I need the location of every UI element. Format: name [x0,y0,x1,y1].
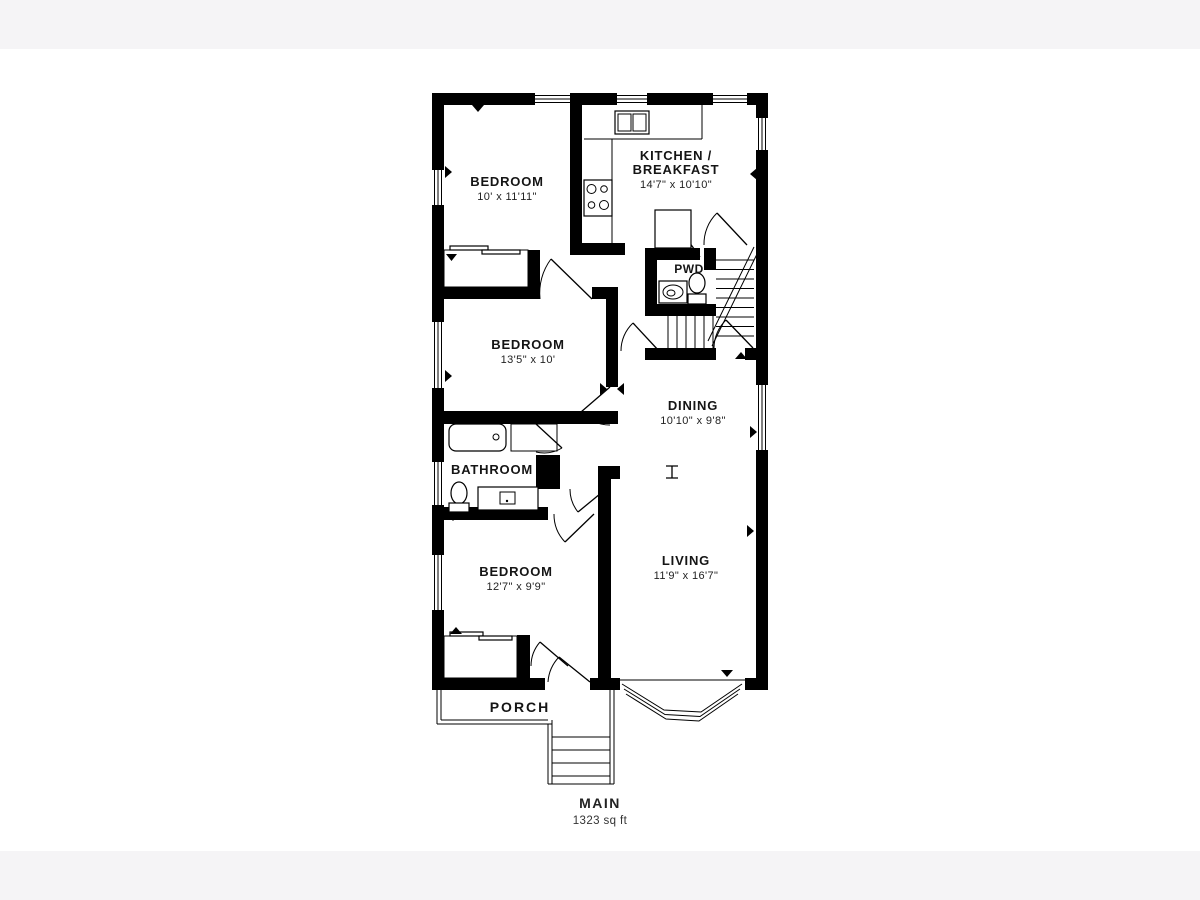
bedroom-middle-dims: 13'5" x 10' [501,354,556,366]
refrigerator [655,210,691,248]
window-top-3 [713,96,747,103]
door-dining-left [621,323,659,351]
bedroom-top-label: BEDROOM [470,174,544,189]
door-bath-hall [536,424,562,453]
powder-label: PWD [674,262,704,276]
plan-footer: MAIN 1323 sq ft [573,795,628,827]
powder-fixtures [659,273,706,304]
kitchen-label-1: KITCHEN / [640,148,712,163]
window-left-2 [435,322,442,388]
kitchen-dims: 14'7" x 10'10" [640,179,712,191]
bedroom-top-dims: 10' x 11'11" [477,191,537,203]
dining-label: DINING [668,398,718,413]
vanity-sink [478,487,538,510]
door-bedroom-bottom [554,514,594,542]
door-front [548,657,590,682]
door-kitchen-stairs [704,213,747,245]
kitchen-label-2: BREAKFAST [633,162,720,177]
porch-label: PORCH [490,699,551,715]
dining-dims: 10'10" x 9'8" [660,415,726,427]
living-label: LIVING [662,553,710,568]
column-marker [666,466,678,478]
powder-sink [659,281,687,303]
door-vestibule [531,642,568,666]
stove [584,180,612,216]
page: { "page": { "background": "#f5f4f6", "ca… [0,0,1200,900]
bathroom-label: BATHROOM [451,462,533,477]
powder-toilet [688,273,706,304]
closet-bedroom-bottom [444,632,517,678]
window-right-2 [759,385,766,450]
bathtub [449,424,506,451]
stairs-lower-flight [668,316,713,348]
bedroom-middle-label: BEDROOM [491,337,565,352]
door-bedroom-top [540,259,592,299]
toilet [449,482,469,512]
doors [531,213,753,682]
level-label: MAIN [579,795,621,811]
porch-steps [548,737,614,784]
window-left-4 [435,555,442,610]
window-left-3 [435,462,442,505]
floor-plan: BEDROOM 10' x 11'11" KITCHEN / BREAKFAST… [0,0,1200,900]
window-top-2 [617,96,647,103]
living-dims: 11'9" x 16'7" [654,570,719,582]
window-right-1 [759,118,766,150]
kitchen-sink [615,111,649,134]
window-top-1 [535,96,570,103]
window-left-1 [435,170,442,205]
bedroom-bottom-label: BEDROOM [479,564,553,579]
bay-window [620,680,745,721]
bedroom-bottom-dims: 12'7" x 9'9" [486,581,545,593]
area-label: 1323 sq ft [573,815,628,827]
closet-bedroom-top [444,246,528,287]
door-dining-right [714,320,753,348]
